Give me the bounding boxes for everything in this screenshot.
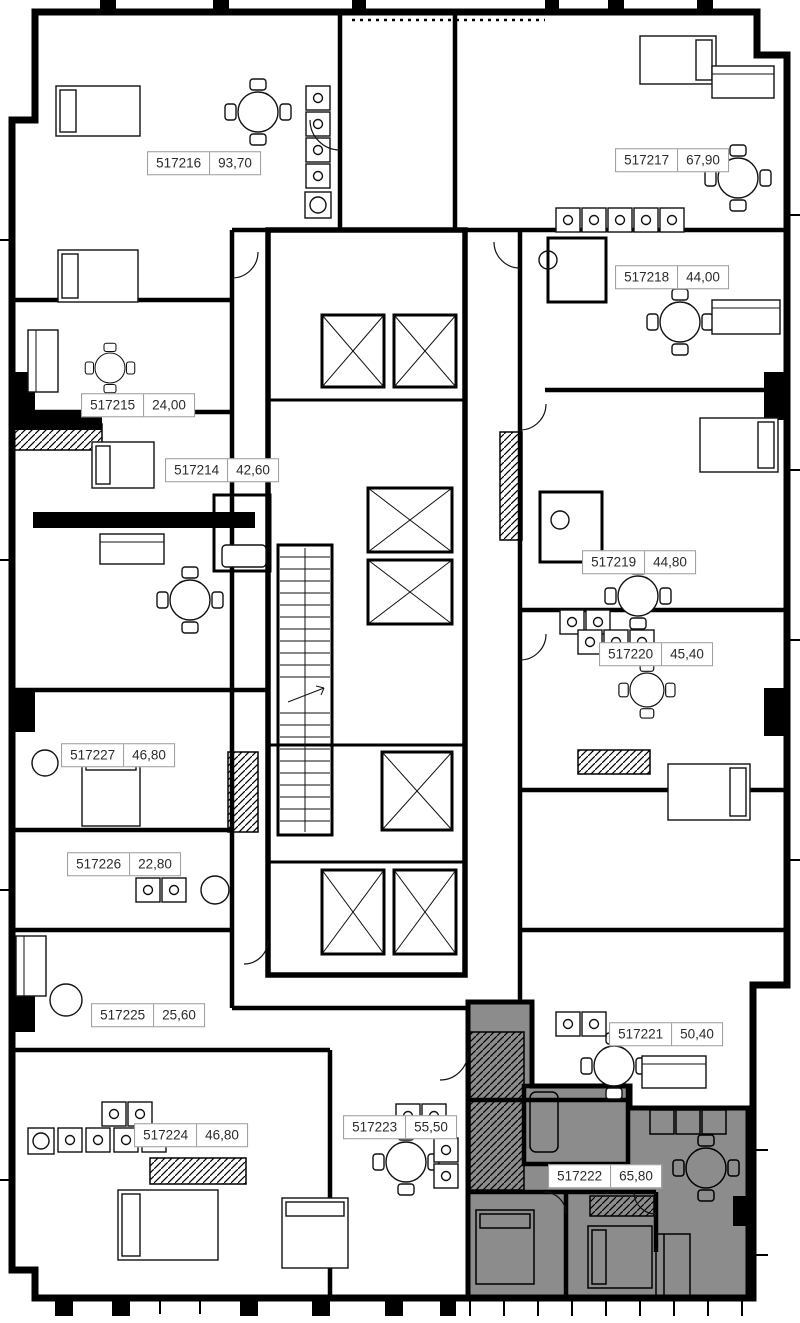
apartment-area: 93,70 — [209, 152, 260, 174]
apartment-label-517214[interactable]: 517214 42,60 — [165, 458, 279, 482]
apartment-label-517224[interactable]: 517224 46,80 — [134, 1123, 248, 1147]
apartment-id: 517227 — [62, 744, 123, 766]
apartment-id: 517218 — [616, 266, 677, 288]
apartment-area: 45,40 — [661, 643, 712, 665]
apartment-id: 517214 — [166, 459, 227, 481]
apartment-id: 517224 — [135, 1124, 196, 1146]
apartment-label-517220[interactable]: 517220 45,40 — [599, 642, 713, 666]
apartment-area: 65,80 — [610, 1165, 661, 1187]
apartment-label-517221[interactable]: 517221 50,40 — [609, 1022, 723, 1046]
apartment-area: 24,00 — [143, 394, 194, 416]
apartment-area: 46,80 — [196, 1124, 247, 1146]
floor-plan: 517216 93,70 517217 67,90 517218 44,00 5… — [0, 0, 800, 1323]
elevator-stair-core — [268, 230, 465, 975]
apartment-label-517225[interactable]: 517225 25,60 — [91, 1003, 205, 1027]
apartment-label-517218[interactable]: 517218 44,00 — [615, 265, 729, 289]
apartment-id: 517217 — [616, 149, 677, 171]
apartment-label-517227[interactable]: 517227 46,80 — [61, 743, 175, 767]
apartment-id: 517215 — [82, 394, 143, 416]
apartment-id: 517216 — [148, 152, 209, 174]
apartment-area: 44,00 — [677, 266, 728, 288]
apartment-id: 517220 — [600, 643, 661, 665]
apartment-label-517223[interactable]: 517223 55,50 — [343, 1115, 457, 1139]
apartment-area: 46,80 — [123, 744, 174, 766]
apartment-area: 25,60 — [153, 1004, 204, 1026]
apartment-label-517217[interactable]: 517217 67,90 — [615, 148, 729, 172]
apartment-id: 517222 — [549, 1165, 610, 1187]
apartment-id: 517223 — [344, 1116, 405, 1138]
apartment-area: 67,90 — [677, 149, 728, 171]
apartment-area: 55,50 — [405, 1116, 456, 1138]
apartment-area: 44,80 — [644, 551, 695, 573]
staircase — [278, 545, 332, 835]
terrace — [340, 12, 545, 230]
apartment-label-517219[interactable]: 517219 44,80 — [582, 550, 696, 574]
apartment-id: 517226 — [68, 853, 129, 875]
apartment-label-517222-selected[interactable]: 517222 65,80 — [548, 1164, 662, 1188]
apartment-id: 517225 — [92, 1004, 153, 1026]
apartment-label-517226[interactable]: 517226 22,80 — [67, 852, 181, 876]
apartment-area: 22,80 — [129, 853, 180, 875]
apartment-label-517216[interactable]: 517216 93,70 — [147, 151, 261, 175]
apartment-area: 42,60 — [227, 459, 278, 481]
apartment-id: 517221 — [610, 1023, 671, 1045]
apartment-id: 517219 — [583, 551, 644, 573]
apartment-area: 50,40 — [671, 1023, 722, 1045]
elevator-shafts — [322, 315, 456, 954]
apartment-label-517215[interactable]: 517215 24,00 — [81, 393, 195, 417]
